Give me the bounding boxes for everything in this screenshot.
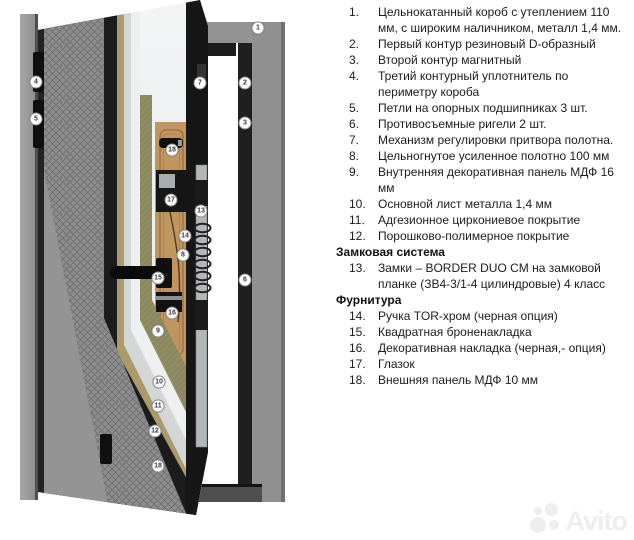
legend-item-number: 7. bbox=[349, 132, 378, 148]
legend-item: 8.Цельногнутое усиленное полотно 100 мм bbox=[336, 148, 630, 164]
legend-item: 16.Декоративная накладка (черная,- опция… bbox=[336, 340, 630, 356]
callout-badge-18: 18 bbox=[166, 144, 179, 157]
legend-item-text: Порошково-полимерное покрытие bbox=[378, 228, 628, 244]
legend-item-text: Цельнокатанный короб с утеплением 110 мм… bbox=[378, 4, 628, 36]
legend: 1.Цельнокатанный короб с утеплением 110 … bbox=[336, 4, 630, 388]
callout-badge-7: 7 bbox=[194, 77, 207, 90]
legend-item: 7.Механизм регулировки притвора полотна. bbox=[336, 132, 630, 148]
callout-badge-14: 14 bbox=[179, 230, 192, 243]
legend-item-text: Третий контурный уплотнитель по периметр… bbox=[378, 68, 628, 100]
legend-item-number: 1. bbox=[349, 4, 378, 36]
legend-item-number: 15. bbox=[349, 324, 378, 340]
callout-badge-8: 8 bbox=[177, 249, 190, 262]
legend-item-text: Противосъемные ригели 2 шт. bbox=[378, 116, 628, 132]
legend-item-text: Внутренняя декоративная панель МДФ 16 мм bbox=[378, 164, 628, 196]
legend-item: 18.Внешняя панель МДФ 10 мм bbox=[336, 372, 630, 388]
legend-item-text: Внешняя панель МДФ 10 мм bbox=[378, 372, 628, 388]
legend-item-text: Ручка TOR-хром (черная опция) bbox=[378, 308, 628, 324]
legend-item-number: 18. bbox=[349, 372, 378, 388]
door-cutaway-diagram: 12345678910111213141516171818 bbox=[0, 0, 330, 540]
callout-badge-15: 15 bbox=[152, 272, 165, 285]
legend-item: 5.Петли на опорных подшипниках 3 шт. bbox=[336, 100, 630, 116]
callout-badge-11: 11 bbox=[152, 400, 165, 413]
legend-item-number: 9. bbox=[349, 164, 378, 196]
legend-item-number: 17. bbox=[349, 356, 378, 372]
legend-item: 13.Замки – BORDER DUO CM на замковой пла… bbox=[336, 260, 630, 292]
callout-badge-18: 18 bbox=[152, 460, 165, 473]
legend-item: 11.Адгезионное циркониевое покрытие bbox=[336, 212, 630, 228]
callout-badge-5: 5 bbox=[30, 113, 43, 126]
callout-badge-6: 6 bbox=[239, 274, 252, 287]
avito-logo-icon bbox=[530, 503, 563, 536]
callout-badge-1: 1 bbox=[252, 22, 265, 35]
legend-section-header: Фурнитура bbox=[336, 292, 630, 308]
callout-badge-17: 17 bbox=[165, 194, 178, 207]
legend-item-number: 8. bbox=[349, 148, 378, 164]
callout-badge-13: 13 bbox=[195, 205, 208, 218]
callout-badge-3: 3 bbox=[239, 117, 252, 130]
legend-item-number: 14. bbox=[349, 308, 378, 324]
legend-item-text: Основной лист металла 1,4 мм bbox=[378, 196, 628, 212]
legend-item-text: Механизм регулировки притвора полотна. bbox=[378, 132, 628, 148]
legend-item-number: 4. bbox=[349, 68, 378, 100]
callout-badge-9: 9 bbox=[152, 325, 165, 338]
badge-layer: 12345678910111213141516171818 bbox=[0, 0, 330, 540]
callout-badge-12: 12 bbox=[149, 425, 162, 438]
legend-item: 15.Квадратная броненакладка bbox=[336, 324, 630, 340]
legend-item-number: 16. bbox=[349, 340, 378, 356]
legend-item: 12.Порошково-полимерное покрытие bbox=[336, 228, 630, 244]
callout-badge-10: 10 bbox=[153, 376, 166, 389]
legend-item-text: Замки – BORDER DUO CM на замковой планке… bbox=[378, 260, 628, 292]
legend-item-text: Глазок bbox=[378, 356, 628, 372]
legend-item-text: Декоративная накладка (черная,- опция) bbox=[378, 340, 628, 356]
legend-item: 10.Основной лист металла 1,4 мм bbox=[336, 196, 630, 212]
legend-item-number: 2. bbox=[349, 36, 378, 52]
legend-item-text: Второй контур магнитный bbox=[378, 52, 628, 68]
callout-badge-4: 4 bbox=[30, 76, 43, 89]
legend-section-header: Замковая система bbox=[336, 244, 630, 260]
screenshot-root: 12345678910111213141516171818 1.Цельнока… bbox=[0, 0, 634, 540]
legend-item-number: 13. bbox=[349, 260, 378, 292]
legend-item-number: 3. bbox=[349, 52, 378, 68]
legend-item: 14.Ручка TOR-хром (черная опция) bbox=[336, 308, 630, 324]
legend-item-text: Цельногнутое усиленное полотно 100 мм bbox=[378, 148, 628, 164]
legend-item: 4.Третий контурный уплотнитель по периме… bbox=[336, 68, 630, 100]
legend-item-number: 10. bbox=[349, 196, 378, 212]
callout-badge-2: 2 bbox=[239, 77, 252, 90]
legend-item-number: 11. bbox=[349, 212, 378, 228]
callout-badge-16: 16 bbox=[166, 307, 179, 320]
legend-item: 17.Глазок bbox=[336, 356, 630, 372]
legend-item-number: 5. bbox=[349, 100, 378, 116]
legend-item: 1.Цельнокатанный короб с утеплением 110 … bbox=[336, 4, 630, 36]
legend-item-text: Адгезионное циркониевое покрытие bbox=[378, 212, 628, 228]
watermark-text: Avito bbox=[566, 506, 628, 536]
legend-item: 6.Противосъемные ригели 2 шт. bbox=[336, 116, 630, 132]
watermark: Avito bbox=[530, 503, 628, 536]
legend-item-text: Первый контур резиновый D-образный bbox=[378, 36, 628, 52]
legend-item: 3.Второй контур магнитный bbox=[336, 52, 630, 68]
legend-item-text: Квадратная броненакладка bbox=[378, 324, 628, 340]
legend-item-number: 12. bbox=[349, 228, 378, 244]
legend-item-number: 6. bbox=[349, 116, 378, 132]
legend-item: 2.Первый контур резиновый D-образный bbox=[336, 36, 630, 52]
legend-item: 9.Внутренняя декоративная панель МДФ 16 … bbox=[336, 164, 630, 196]
legend-item-text: Петли на опорных подшипниках 3 шт. bbox=[378, 100, 628, 116]
